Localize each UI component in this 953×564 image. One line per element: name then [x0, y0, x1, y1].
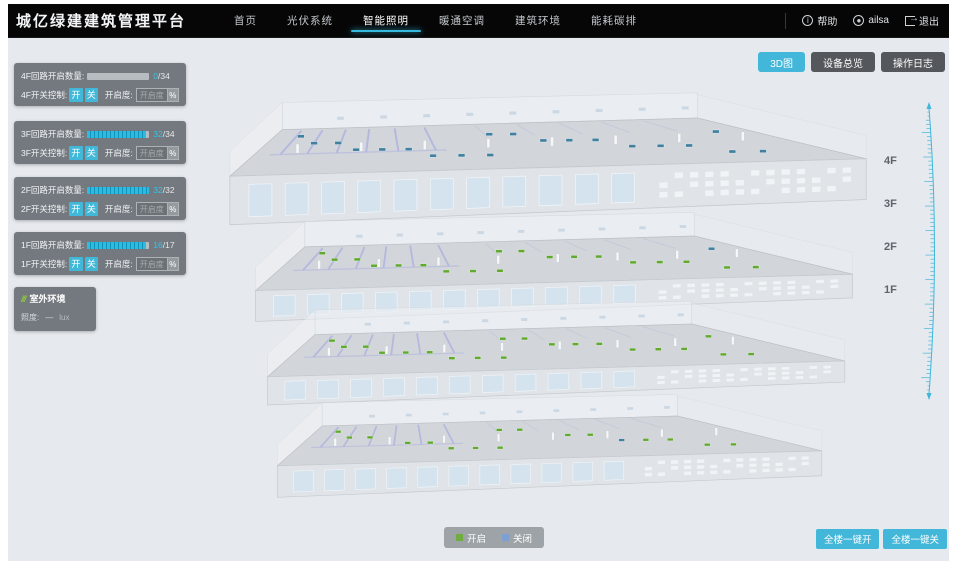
nav-item-home[interactable]: 首页 [234, 4, 257, 37]
logout-icon [905, 16, 915, 26]
switch-control-label: 3F开关控制: [21, 147, 67, 159]
switch-control-label: 2F开关控制: [21, 203, 67, 215]
openness-label: 开启度: [105, 203, 133, 215]
openness-label: 开启度: [105, 258, 133, 270]
legend-item-on: 开启 [456, 531, 486, 545]
switch-off-button[interactable]: 关 [85, 257, 98, 271]
circuit-count-label: 1F回路开启数量: [21, 239, 84, 251]
openness-input[interactable] [136, 146, 168, 160]
switch-on-button[interactable]: 开 [69, 88, 82, 102]
openness-input[interactable] [136, 88, 168, 102]
circuit-count-value: 16/17 [153, 240, 174, 250]
circuit-progress-bar [87, 131, 149, 138]
percent-button[interactable]: % [168, 202, 179, 216]
all-off-button[interactable]: 全楼一键关 [883, 529, 947, 549]
help-label: 帮助 [817, 13, 837, 28]
all-on-button[interactable]: 全楼一键开 [816, 529, 880, 549]
circuit-progress-bar [87, 73, 149, 80]
bulk-actions: 全楼一键开 全楼一键关 [816, 529, 947, 549]
floor-panel-1f: 1F回路开启数量: 16/17 1F开关控制: 开 关 开启度: % [14, 232, 186, 275]
platform-logo: 城亿绿建建筑管理平台 [8, 10, 186, 31]
floor-4f-model[interactable] [230, 93, 866, 225]
switch-control-label: 1F开关控制: [21, 258, 67, 270]
help-icon: i [802, 15, 813, 26]
floor-1f-model[interactable] [277, 394, 821, 497]
openness-input[interactable] [136, 202, 168, 216]
nav-item-smart-lighting[interactable]: 智能照明 [363, 4, 409, 37]
floor-panel-4f: 4F回路开启数量: 0/34 4F开关控制: 开 关 开启度: % [14, 63, 186, 106]
switch-on-button[interactable]: 开 [69, 146, 82, 160]
progress-fill [87, 131, 145, 138]
app-root: 城亿绿建建筑管理平台 首页 光伏系统 智能照明 暖通空调 建筑环境 能耗碳排 i… [8, 4, 949, 561]
switch-off-button[interactable]: 关 [85, 202, 98, 216]
logout-button[interactable]: 退出 [905, 13, 939, 28]
outdoor-env-panel: /// 室外环境 照度: — lux [14, 287, 96, 331]
help-button[interactable]: i 帮助 [802, 13, 837, 28]
circuit-count-value: 32/32 [153, 185, 174, 195]
outdoor-env-title: 室外环境 [30, 292, 66, 305]
floor-label-4f[interactable]: 4F [884, 155, 904, 167]
user-account[interactable]: ● ailsa [853, 15, 889, 26]
off-color-swatch [502, 534, 509, 541]
circuit-count-value: 32/34 [153, 129, 174, 139]
nav-item-hvac[interactable]: 暖通空调 [439, 4, 485, 37]
illuminance-unit: lux [59, 313, 69, 322]
navbar-right-group: i 帮助 ● ailsa 退出 [785, 13, 949, 29]
switch-off-button[interactable]: 关 [85, 146, 98, 160]
logout-label: 退出 [919, 13, 939, 28]
top-navbar: 城亿绿建建筑管理平台 首页 光伏系统 智能照明 暖通空调 建筑环境 能耗碳排 i… [8, 4, 949, 38]
device-overview-button[interactable]: 设备总览 [811, 52, 875, 72]
floor-2f-model[interactable] [268, 301, 845, 405]
illuminance-label: 照度: [21, 312, 39, 323]
progress-fill [87, 242, 145, 249]
percent-button[interactable]: % [168, 257, 179, 271]
circuit-count-label: 2F回路开启数量: [21, 184, 84, 196]
nav-item-pv-system[interactable]: 光伏系统 [287, 4, 333, 37]
circuit-count-value: 0/34 [153, 71, 170, 81]
floor-panel-3f: 3F回路开启数量: 32/34 3F开关控制: 开 关 开启度: % [14, 121, 186, 164]
circuit-progress-bar [87, 242, 149, 249]
floor-label-1f[interactable]: 1F [884, 284, 904, 296]
username-label: ailsa [868, 15, 889, 26]
nav-item-building-env[interactable]: 建筑环境 [515, 4, 561, 37]
switch-on-button[interactable]: 开 [69, 202, 82, 216]
view-3d-button[interactable]: 3D图 [758, 52, 805, 72]
view-mode-buttons: 3D图 设备总览 操作日志 [758, 52, 945, 72]
percent-button[interactable]: % [168, 146, 179, 160]
user-avatar-icon: ● [853, 15, 864, 26]
floor-panel-2f: 2F回路开启数量: 32/32 2F开关控制: 开 关 开启度: % [14, 177, 186, 220]
circuit-count-label: 4F回路开启数量: [21, 70, 84, 82]
circuit-progress-bar [87, 187, 149, 194]
circuit-count-label: 3F回路开启数量: [21, 128, 84, 140]
on-color-swatch [456, 534, 463, 541]
main-menu: 首页 光伏系统 智能照明 暖通空调 建筑环境 能耗碳排 [234, 4, 637, 37]
illuminance-value: — [45, 313, 53, 322]
percent-button[interactable]: % [168, 88, 179, 102]
openness-input[interactable] [136, 257, 168, 271]
legend-item-off: 关闭 [502, 531, 532, 545]
switch-on-button[interactable]: 开 [69, 257, 82, 271]
floor-label-2f[interactable]: 2F [884, 241, 904, 253]
nav-item-energy-carbon[interactable]: 能耗碳排 [591, 4, 637, 37]
status-legend: 开启 关闭 [444, 527, 544, 548]
building-3d-view[interactable] [200, 86, 900, 516]
progress-fill [87, 187, 149, 194]
floor-zoom-ruler[interactable] [905, 100, 949, 404]
openness-label: 开启度: [105, 89, 133, 101]
switch-control-label: 4F开关控制: [21, 89, 67, 101]
brightness-icon: /// [21, 294, 26, 304]
switch-off-button[interactable]: 关 [85, 88, 98, 102]
operation-log-button[interactable]: 操作日志 [881, 52, 945, 72]
openness-label: 开启度: [105, 147, 133, 159]
floor-label-3f[interactable]: 3F [884, 198, 904, 210]
